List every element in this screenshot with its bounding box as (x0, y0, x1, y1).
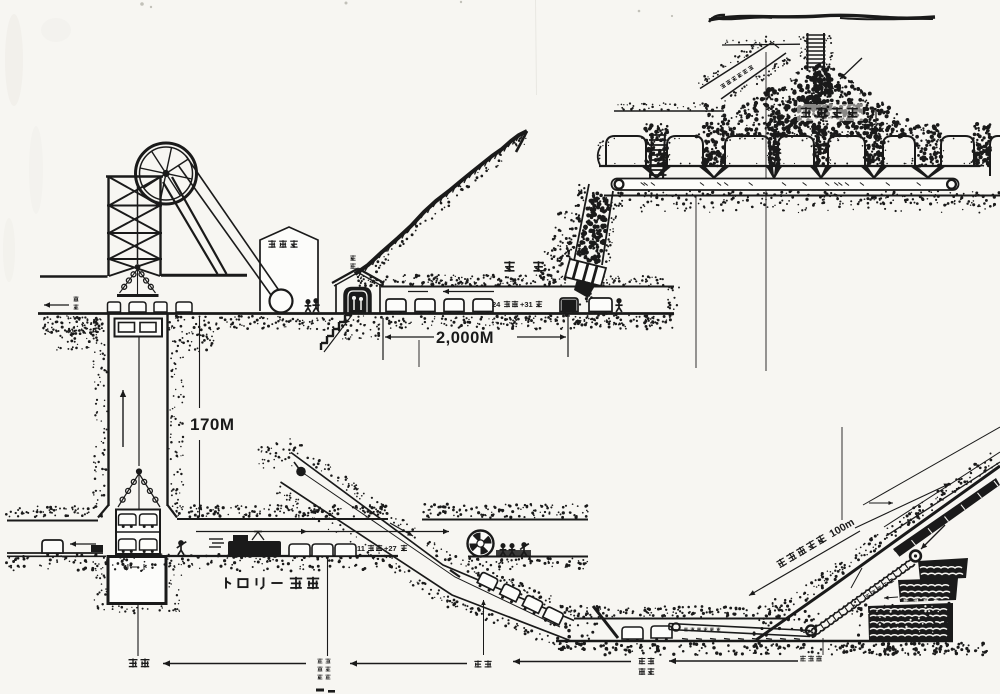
svg-text:2,000M: 2,000M (436, 329, 494, 347)
svg-text:24: 24 (492, 300, 501, 309)
svg-text:170M: 170M (190, 415, 235, 434)
svg-text:+31: +31 (520, 300, 533, 309)
svg-text:11: 11 (357, 544, 365, 553)
